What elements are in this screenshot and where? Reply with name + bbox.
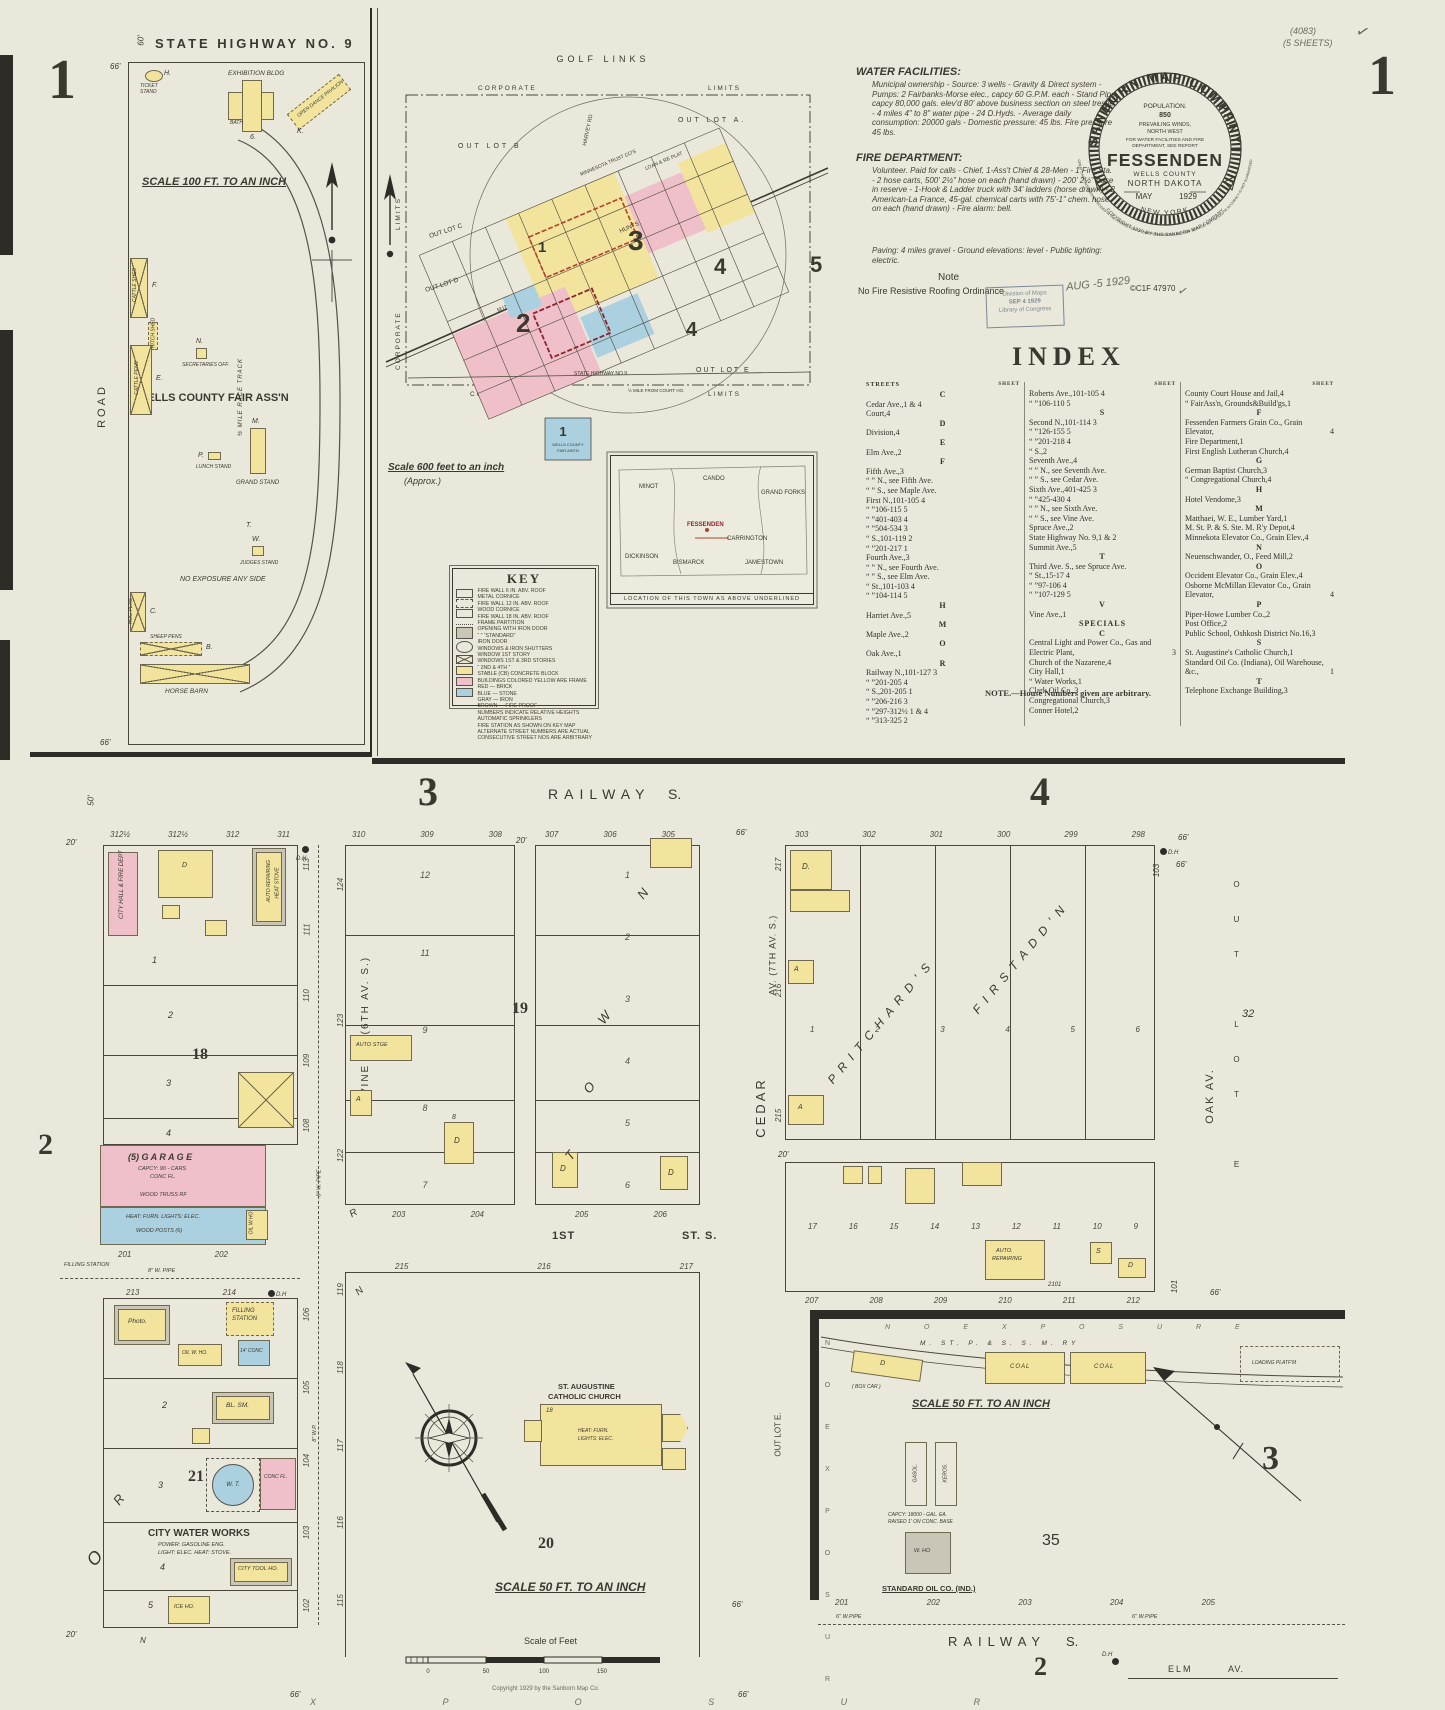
d-dwelling-ext [790,890,850,912]
lot-label: 5 [1070,1025,1074,1034]
index-row: Osborne McMillan Elevator Co., Grain Ele… [1185,581,1334,600]
half-mile-note: ½ MILE FROM COURT HO. [628,387,684,393]
index-row: E [866,438,1020,448]
number-103: 103 [1152,864,1161,877]
lot-number: 307 [545,830,558,839]
shed-building [205,920,227,936]
church-height: 18 [546,1408,553,1414]
church-name-1: ST. AUGUSTINE [558,1382,615,1391]
crossed-shed-building [238,1072,294,1128]
paving-note: Paving: 4 miles gravel - Ground elevatio… [872,246,1116,265]
index-row: “ ” S., see Maple Ave. [866,486,1020,496]
lot-number: 312½ [168,830,188,839]
index-row: Maple Ave.,2 [866,630,1020,640]
index-row: P [1185,600,1334,610]
index-row: Third Ave. S., see Spruce Ave. [1029,562,1176,572]
lunch-letter: P. [198,452,204,459]
plat-sheet-4: 4 [714,254,727,279]
photo-building [118,1309,166,1341]
index-row: “ ”126-155 5 [1029,427,1176,437]
a-row-building [962,1162,1002,1186]
lot-number: 207 [805,1296,818,1305]
plat-sheet-4b: 4 [686,319,698,341]
index-row: “ ” N., see Seventh Ave. [1029,466,1176,476]
railroad-border-top [810,1310,1345,1319]
index-row: H [1185,485,1334,495]
lot-number: 205 [1202,1598,1215,1607]
index-row: Hotel Vendome,3 [1185,495,1334,505]
dim66b: 66' [1176,860,1186,869]
fair-dim-66: 66' [110,62,120,71]
index-row: “ ”104-114 5 [866,591,1020,601]
seal-population-label: POPULATION. [1143,103,1186,110]
out-lot-b: OUT LOT B [458,143,522,150]
sheet-number-left: 1 [48,48,76,112]
lot-number: 115 [336,1594,345,1607]
small-building [905,1168,935,1204]
church-building [540,1404,662,1466]
block21-top-lots: 213214 [126,1288,236,1297]
height-8: 8 [452,1114,456,1121]
block21-row-line [103,1378,298,1379]
grand-stand-label: GRAND STAND [236,480,279,486]
sheet-number-right: 1 [1368,44,1396,108]
fair-dim-66-bottom: 66' [100,738,110,747]
fair-box-label1: WELLS COUNTY [552,442,584,447]
auto-repair-label: AUTO REPAIRING [266,860,272,902]
index-row: “ S.,2 [1029,447,1176,457]
ticket-stand-building [145,70,163,82]
a-building-label: A [356,1096,361,1103]
dwelling-letter: D [182,862,187,869]
d-building-label: D [668,1168,674,1177]
railway-bottom-label: RAILWAY [948,1634,1046,1649]
seal-month: MAY [1136,192,1153,201]
bar-0: 0 [426,1669,430,1675]
index-row: State Highway No. 9,1 & 2 [1029,533,1176,543]
out-lot-e-left: OUT LOT E. [774,1412,783,1456]
index-row: Standard Oil Co. (Indiana), Oil Warehous… [1185,658,1334,677]
index-column-2: SHEET Roberts Ave.,101-105 4“ ”106-110 5… [1024,382,1180,726]
pipe6-label: 6" W.PIPE [836,1614,862,1620]
small-building [843,1166,863,1184]
index-row: Roberts Ave.,101-105 4 [1029,389,1176,399]
coal-label-1: COAL [1010,1364,1030,1370]
exhibition-bldg-label: EXHIBITION BLDG [228,70,284,77]
lot-number: 211 [1063,1296,1076,1305]
minnesota-trust: MINNESOTA TRUST CO'S [579,148,637,177]
index-row: SPECIALS [1029,619,1176,629]
index-row: “ ” S., see Elm Ave. [866,572,1020,582]
pipe8-label: 8" W. PIPE [317,1169,323,1196]
index-row: C [866,390,1020,400]
store-building [158,850,213,898]
index-sheet-label: SHEET [1312,382,1334,387]
oil-warehouse-label: W. HO [914,1548,930,1554]
index-row: “ ”401-403 4 [866,515,1020,525]
lot-number: 208 [869,1296,882,1305]
index-row: Public School, Oshkosh District No.16,3 [1185,629,1334,639]
index-row: Division,4 [866,428,1020,438]
elm-avenue-av: AV. [1228,1664,1244,1674]
seal-state: NORTH DAKOTA [1128,179,1203,188]
index-row: M. St. P. & S. Ste. M. R'y Depot,4 [1185,523,1334,533]
plat-sheet-2: 2 [516,308,530,338]
ticket-stand-label: TICKET STAND [140,84,174,95]
tool-house-label: CITY TOOL HO. [238,1566,278,1572]
elm-street-line [1128,1678,1338,1679]
d-building-label: D [1128,1262,1133,1269]
horse-barn-building [140,664,250,684]
lot-number: 216 [537,1262,550,1271]
a-building [350,1090,372,1116]
oil-warehouse-label: OIL W.HO [248,1212,254,1235]
hydrant-dot [1112,1658,1119,1665]
judges-stand-label: JUDGES STAND [240,560,278,566]
block18-lot4: 4 [166,1128,171,1138]
lot-number: 118 [336,1361,345,1374]
box-car-label: ( BOX CAR ) [852,1384,881,1390]
p4-cell-numbers: 123456 [810,1025,1140,1034]
yard-exposure-left: N O E X P O S U R E [824,1340,831,1710]
yard-bottom-lots: 201202203204205 [835,1598,1215,1607]
lot-number: 205 [575,1210,588,1219]
lot-label: 4 [1005,1025,1009,1034]
p4-row2-lots: 17161514131211109 [808,1222,1138,1231]
church-name-2: CATHOLIC CHURCH [548,1392,621,1401]
number-101: 101 [1170,1280,1179,1293]
block18-lot1: 1 [152,955,157,965]
index-row: “ Congregational Church,4 [1185,475,1334,485]
note-body: No Fire Resistive Roofing Ordinance [858,286,1004,296]
hydrant-label: D.H [1168,850,1178,856]
index-row: Spruce Ave.,2 [1029,523,1176,533]
key-line: CONSECUTIVE STREET NOS ARE ARBITRARY [477,735,592,741]
sheep-pens-label: SHEEP PENS [150,634,182,640]
fair-state-highway-label: STATE HIGHWAY NO. 9 [155,36,355,51]
fair-box-number: 1 [559,424,566,439]
inset-caption: LOCATION OF THIS TOWN AS ABOVE UNDERLINE… [611,593,813,604]
index-row: “ Water Works,1 [1029,677,1176,687]
d-building-label: D [454,1136,460,1145]
lot-number: 215 [395,1262,408,1271]
harvey-rd: HARVEY RD [582,114,595,146]
index-row: M [1185,504,1334,514]
lot-number: 308 [489,830,502,839]
index-row: “ ”201-218 4 [1029,437,1176,447]
block20-number: 20 [538,1535,554,1553]
railway-bottom-s: S. [1066,1634,1078,1649]
dim-66: 66' [736,828,746,837]
exhibition-building-wing [242,80,262,132]
p19-dim20: 20' [516,836,526,845]
garage-title: (5) G A R A G E [128,1152,192,1162]
index-row: Fire Department,1 [1185,437,1334,447]
sanborn-map-sheet: 1 1 (4083) (5 SHEETS) ✓ STATE HIGHWAY NO… [0,0,1445,1710]
index-row: D [866,419,1020,429]
hydrant-dot [268,1290,275,1297]
lot-number: 204 [1110,1598,1123,1607]
index-row: Conner Hotel,2 [1029,706,1176,716]
block21-row-line [103,1590,298,1591]
index-row: M [866,620,1020,630]
index-row: Telephone Exchange Building,3 [1185,686,1334,696]
a-building [788,960,814,984]
index-row: “ ” N., see Fourth Ave. [866,563,1020,573]
index-row: Second N.,101-114 3 [1029,418,1176,428]
catalog-number: ©C1F 47970 [1130,284,1175,293]
sheep-pens-letter: B. [206,644,213,651]
grand-stand-letter: M. [252,418,260,425]
location-inset-map: MINOT CANDO GRAND FORKS FESSENDEN CARRIN… [610,455,814,605]
n-mark: N [140,1636,146,1645]
inset-town-grandforks: GRAND FORKS [761,490,805,496]
index-row: Central Light and Power Co., Gas and Ele… [1029,638,1176,657]
copyright-line: Copyright 1929 by the Sanborn Map Co. [492,1686,599,1692]
exhibition-number: 6. [250,134,256,141]
lot-label: 11 [420,948,429,958]
out-lot-d: OUT LOT D [424,277,459,294]
hydrant-dot [1160,848,1167,855]
lot-label: 3 [625,994,630,1004]
garage-lots: 201202 [118,1250,228,1259]
lot-number: 213 [126,1288,139,1297]
index-row: T [1185,677,1334,687]
lot-number: 116 [336,1516,345,1529]
index-row: O [866,639,1020,649]
dim66: 66' [1210,1288,1220,1297]
index-sheet-label: SHEET [1154,382,1176,387]
index-row: Elm Ave.,2 [866,448,1020,458]
inset-town-dickinson: DICKINSON [625,554,658,560]
block20-left-margin: 119118117116115 [334,1285,347,1605]
seal-report-2: DEPARTMENT, SEE REPORT [1132,143,1198,149]
pencil-check-icon: ✓ [1176,283,1189,299]
secretaries-building [196,348,207,359]
kerosene-tank-label: KEROS. [942,1464,948,1483]
plat-sheet-3: 3 [628,225,644,256]
index-table: STREETSSHEET CCedar Ave.,1 & 4Court,4DDi… [862,382,1338,726]
lot-label: 6 [625,1180,630,1190]
blacksmith-label: BL. SM. [226,1402,249,1409]
dim66: 66' [290,1690,300,1699]
p4-dim20: 20' [778,1150,788,1159]
lot-number: 203 [1018,1598,1031,1607]
block18-row-line [103,985,298,986]
judges-stand-building [252,546,264,556]
power-house-building [260,1458,296,1510]
index-row: Piper-Howe Lumber Co.,2 [1185,610,1334,620]
box-car-d: D [880,1360,886,1368]
index-streets-header: STREETS [866,382,900,388]
p2-dim20b: 20' [66,1630,76,1639]
lunch-stand-label: LUNCH STAND [196,464,231,470]
key-symbol-column [456,588,473,742]
sheet2-edge-number: 2 [38,1128,53,1162]
cattle-pens-letter: E. [156,375,163,382]
lot-number: 104 [302,1453,311,1466]
tank-capacity-1: CAPCY: 18000 - GAL. EA. [888,1512,947,1518]
pipe-label: 8" W. PIPE [148,1268,175,1274]
block21-lot2: 2 [162,1400,167,1410]
sheet3-edge-number: 3 [1262,1440,1279,1478]
limits-bottom: LIMITS [708,391,741,398]
lot-label: 5 [625,1118,630,1128]
fair-scale-label: SCALE 100 FT. TO AN INCH [142,176,286,188]
lot-number: 309 [420,830,433,839]
race-track-label: ½ MILE RACE TRACK [238,358,244,436]
index-row: Vine Ave.,1 [1029,610,1176,620]
lot-number: 217 [774,858,783,871]
index-row: F [866,457,1020,467]
seal-year: 1929 [1179,192,1197,201]
block18-top-lots: 312½312½312311 [110,830,290,839]
first-street-label: 1ST [552,1230,575,1242]
lot-number: 312 [226,830,239,839]
index-row: S [1185,638,1334,648]
secretaries-label: SECRETARIES OFF. [182,362,229,368]
note-title: Note [938,272,959,283]
a-building2-label: A [798,1104,803,1111]
out-lot-c: OUT LOT C [428,223,463,240]
oil-warehouse2-label: OIL W. HO. [182,1350,208,1356]
p2-dim20: 20' [66,838,76,847]
yard-scale-label: SCALE 50 FT. TO AN INCH [912,1398,1050,1410]
block21-number: 21 [188,1468,204,1486]
index-footnote: NOTE.—House Numbers given are arbitrary. [985,688,1151,698]
index-row: First English Lutheran Church,4 [1185,447,1334,457]
block21-right-lots: 106105104103102 [300,1310,313,1610]
block21-row-line [103,1522,298,1523]
auto-storage-building [350,1035,412,1061]
no-exposure-arc: N O E X P O S U R E [885,1324,1256,1331]
block19-top-lots-left: 310309308 [352,830,502,839]
lunch-stand-building [208,452,221,460]
lot-number: 119 [336,1283,345,1296]
garage-heat: HEAT: FURN. LIGHTS: ELEC. [126,1214,200,1220]
lot-number: 111 [302,924,311,936]
lot-label: 4 [625,1056,630,1066]
garage-posts: WOOD POSTS (6) [136,1228,182,1234]
index-row: Railway N.,101-127 3 [866,668,1020,678]
section-divider [372,758,1345,764]
small-building [868,1166,882,1184]
block35-number: 35 [1042,1532,1060,1550]
series-number: (4083) [1290,26,1316,36]
p4-left-margin: 217216215 [772,860,785,1120]
lot-number: 306 [603,830,616,839]
auto-repair-heat: HEAT STOVE [275,867,281,898]
bar-scale: 0 50 100 150 [398,1652,666,1676]
a-building-label: A [794,966,799,973]
d-dwelling-label: D. [802,862,810,871]
index-column-1: STREETSSHEET CCedar Ave.,1 & 4Court,4DDi… [862,382,1024,726]
cww-light: LIGHT: ELEC. HEAT: STOVE. [158,1550,231,1556]
index-row: “ St.,15-17 4 [1029,571,1176,581]
scale-of-feet-label: Scale of Feet [524,1636,577,1646]
block19-left-rows: 1211987 [420,870,430,1190]
row-line [535,1025,700,1026]
road-label: ROAD [96,384,108,428]
a-building2 [788,1095,824,1125]
index-row: Fourth Ave.,3 [866,553,1020,563]
fair-name-label: WELLS COUNTY FAIR ASS'N [137,392,289,404]
lot-number: 303 [795,830,808,839]
lot-label: 2 [625,932,630,942]
tool-house-building [234,1562,288,1582]
out-lot-e-label: OUT LOT E [1232,880,1241,1195]
church-lights: LIGHTS: ELEC. [578,1436,613,1442]
lot-number: 215 [774,1109,783,1122]
first-street-s: ST. S. [682,1230,717,1242]
conc-label: 14' CONC [240,1348,263,1354]
index-row: Minnekota Elevator Co., Grain Elev.,4 [1185,533,1334,543]
index-row: V [1029,600,1176,610]
limits-top: LIMITS [708,85,741,92]
lot-number: 124 [336,878,345,891]
sheet-count: (5 SHEETS) [1283,38,1333,48]
dim-50: 50' [87,795,96,805]
auto-repairing-label1: AUTO. [996,1248,1013,1254]
filling-station2-label2: STATION [232,1316,257,1322]
church-annex [662,1448,686,1470]
power-house-label: CONC FL. [264,1474,287,1480]
block18-right-lots: 113111110109108 [300,860,313,1130]
inset-town-cando: CANDO [703,476,725,482]
index-row: Post Office,2 [1185,619,1334,629]
golf-links-label: GOLF LINKS [556,54,649,64]
lot-number: 310 [352,830,365,839]
lot-label: 1 [810,1025,814,1034]
sheet2-bottom-number: 2 [1034,1652,1047,1682]
inset-town-carrington: CARRINGTON [727,536,767,542]
lot-number: 311 [277,830,290,839]
block19-number: 19 [512,1000,528,1018]
lot-number: 108 [302,1119,311,1132]
state-hwy-9: STATE HIGHWAY NO 9 [574,371,627,377]
d-building-label: D [560,1164,566,1173]
bar-150: 150 [597,1669,608,1675]
lot-number: 206 [654,1210,667,1219]
block21-lot5: 5 [148,1600,153,1610]
lot-number: 209 [934,1296,947,1305]
out-lot-a: OUT LOT A. [678,117,746,124]
seal-city: FESSENDEN [1107,150,1223,170]
seal-winds-2: NORTH WEST [1147,129,1183,135]
lot-label: 15 [890,1222,899,1231]
row-line [535,935,700,936]
lot-number: 201 [118,1250,131,1259]
sheep-pens-building [140,642,202,656]
lot-number: 301 [930,830,943,839]
lot-label: 7 [423,1180,428,1190]
lot-label: 17 [808,1222,817,1231]
limits-left: LIMITS [395,197,402,230]
index-row: O [1185,562,1334,572]
lot-number: 110 [302,989,311,1002]
lot-number: 214 [223,1288,236,1297]
index-row: N [1185,543,1334,553]
p4-bottom-lots: 207208209210211212 [805,1296,1140,1305]
lot-number: 300 [997,830,1010,839]
shed-building [162,905,180,919]
photo-label: Photo. [128,1318,147,1325]
index-row: “ FairAss'n, Grounds&Build'gs,1 [1185,399,1334,409]
plat-scale-approx: (Approx.) [404,476,441,486]
index-row: Fessenden Farmers Grain Co., Grain Eleva… [1185,418,1334,437]
index-row: Neuenschwander, O., Feed Mill,2 [1185,552,1334,562]
r-letter: R [348,1207,360,1220]
